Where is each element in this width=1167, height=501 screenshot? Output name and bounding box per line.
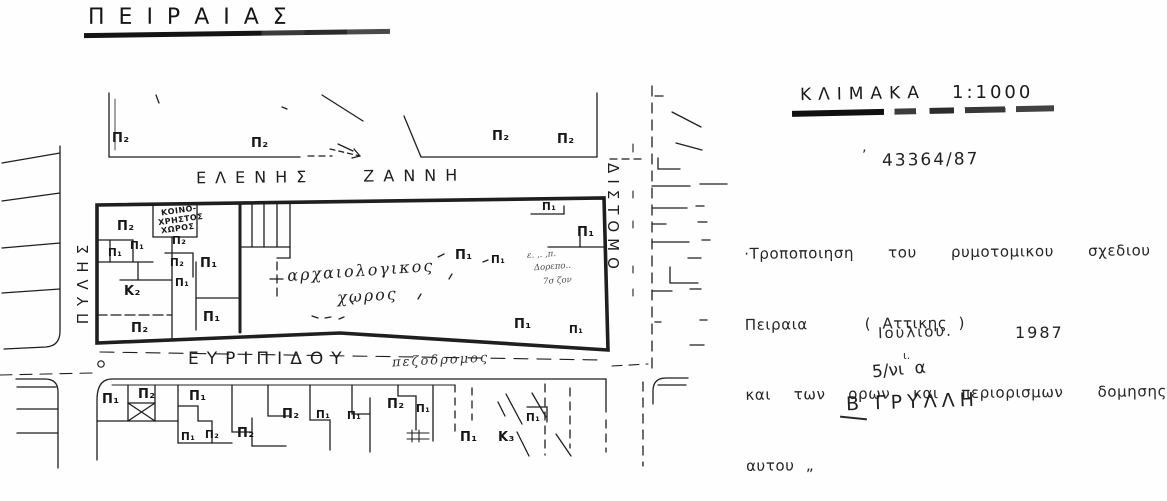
main-block-strips [242, 203, 290, 300]
scale-value: 1:1000 [952, 82, 1033, 103]
street-name-evripidou: ΕΥΡΙΠΙΔΟΥ [188, 349, 350, 369]
zone-label: Π₁ [316, 409, 330, 421]
zone-label: Π₁ [181, 431, 195, 443]
reference-number: 43364/87 [882, 149, 980, 171]
zone-label: Π₁ [175, 277, 189, 289]
zone-label: Π₂ [251, 136, 269, 151]
zone-label: Π₁ [577, 225, 595, 240]
zone-label: Π₂ [170, 257, 184, 269]
zone-label: Π₂ [557, 132, 575, 147]
note-line: Πειραια ( Αττικης ) [745, 310, 1167, 337]
zone-label: Π₂ [172, 235, 186, 247]
south-block-lines [97, 379, 643, 466]
zone-label: Π₁ [569, 324, 583, 336]
note-line: αυτου „ [746, 451, 1167, 478]
zone-label: Π₁ [514, 317, 532, 332]
scanned-plan-page: { "title": "ΠΕΙΡΑΙΑΣ", "map": { "streets… [0, 0, 1167, 482]
zone-label: Π₂ [138, 387, 156, 402]
zone-label: Π₁ [455, 248, 473, 263]
street-name-distomo: ΔΙΣΤΟΜΟ [604, 163, 622, 275]
zone-label: Π₁ [130, 240, 144, 252]
date-year: 1987 [1015, 323, 1064, 342]
zone-label: Π₂ [237, 426, 255, 441]
zone-label: Π₁ [460, 430, 478, 445]
note-line: ·Τροποποιηση του ρυμοτομικου σχεδιου [744, 239, 1166, 266]
zone-label: Π₂ [387, 397, 405, 412]
zone-label: Π₂ [131, 321, 149, 336]
signature: Β ΓΡΥΛΛΗ [846, 389, 980, 416]
zone-label: Π₁ [200, 256, 218, 271]
zone-label: Π₂ [112, 131, 130, 146]
page-title: ΠΕΙΡΑΙΑΣ [88, 5, 301, 30]
handwritten-note: ·Τροποποιηση του ρυμοτομικου σχεδιου Πει… [744, 192, 1167, 501]
zone-label: Π₂ [492, 129, 510, 144]
scale-underline [792, 105, 1062, 117]
map-scribble-line1: ε. ,. ,π. [527, 249, 557, 261]
date-month: Ιουλιου. [878, 322, 953, 343]
scale-label: ΚΛΙΜΑΚΑ [800, 83, 926, 105]
zone-label: Π₁ [542, 201, 556, 213]
street-name-elenis-zanni: ΕΛΕΝΗΣ ΖΑΝΝΗ [196, 166, 466, 188]
map-scribble-line3: 7σ ζον [543, 275, 572, 287]
zone-label: Κ₂ [124, 284, 141, 299]
zone-label: Π₁ [108, 247, 122, 259]
zone-label: Π₁ [189, 389, 207, 404]
zone-label: Κ₃ [498, 430, 515, 445]
zone-label: Π₁ [347, 410, 361, 422]
zone-label: Π₁ [416, 403, 430, 415]
zone-label: Π₁ [526, 412, 540, 424]
north-blocks-lines [109, 93, 646, 159]
east-street-lines [633, 86, 727, 404]
zone-label: Π₂ [205, 429, 219, 441]
zone-label: Π₁ [102, 392, 120, 407]
zone-label: Π₁ [491, 254, 505, 266]
zone-label: Π₁ [203, 310, 221, 325]
reference-mark: ’ [862, 148, 866, 164]
west-block-lines [2, 146, 60, 468]
zone-label: Π₂ [282, 407, 300, 422]
street-name-pylis: ΠΥΛΗΣ [74, 238, 92, 324]
map-linework [0, 0, 745, 482]
zone-label: Π₂ [117, 219, 135, 234]
